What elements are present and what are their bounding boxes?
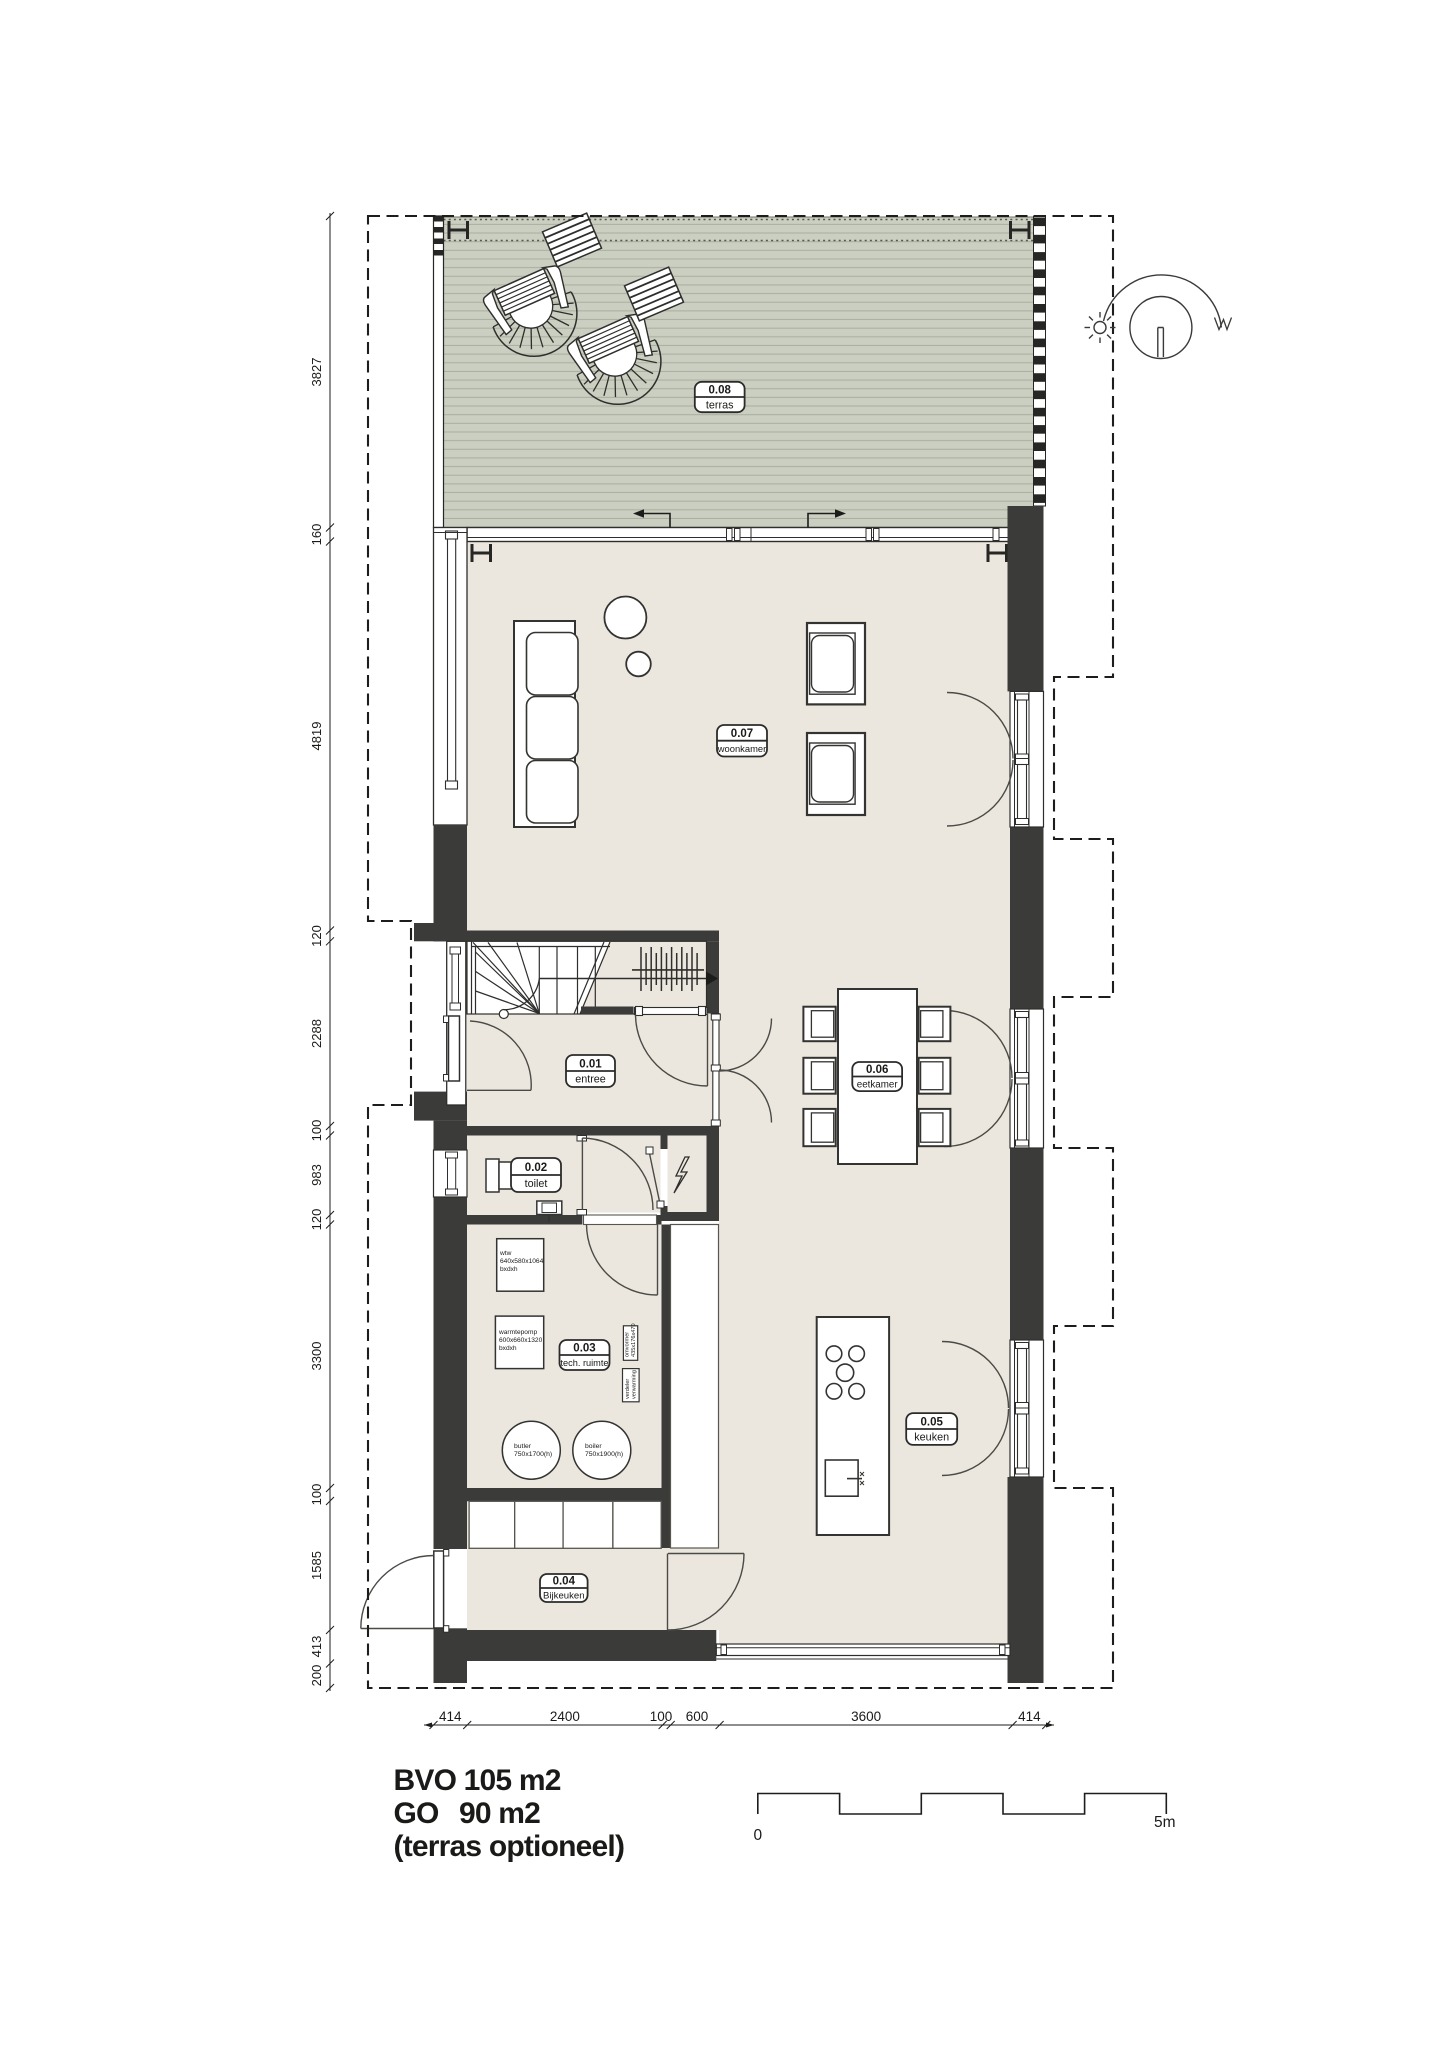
svg-text:0.02: 0.02 — [525, 1162, 547, 1174]
svg-text:butler: butler — [514, 1443, 532, 1450]
svg-text:750x1700(h): 750x1700(h) — [514, 1451, 552, 1458]
svg-text:160: 160 — [309, 524, 324, 546]
svg-text:0: 0 — [753, 1827, 762, 1844]
svg-text:100: 100 — [650, 1709, 673, 1724]
svg-text:200: 200 — [309, 1665, 324, 1687]
svg-text:(terras optioneel): (terras optioneel) — [394, 1830, 625, 1863]
svg-text:boiler: boiler — [585, 1443, 602, 1450]
svg-text:600x660x1320: 600x660x1320 — [499, 1337, 543, 1344]
svg-text:413: 413 — [309, 1636, 324, 1658]
svg-text:eetkamer: eetkamer — [857, 1079, 899, 1090]
svg-text:100: 100 — [309, 1484, 324, 1506]
svg-text:bxdxh: bxdxh — [499, 1345, 517, 1352]
svg-text:bxdxh: bxdxh — [500, 1266, 518, 1273]
svg-text:600: 600 — [686, 1709, 709, 1724]
svg-text:5m: 5m — [1154, 1814, 1176, 1831]
svg-text:435x176x470: 435x176x470 — [631, 1323, 637, 1357]
svg-text:120: 120 — [309, 1209, 324, 1231]
svg-text:414: 414 — [1018, 1709, 1041, 1724]
svg-text:BVO 105 m2: BVO 105 m2 — [394, 1764, 561, 1797]
svg-text:2400: 2400 — [550, 1709, 580, 1724]
svg-text:Bijkeuken: Bijkeuken — [543, 1591, 585, 1602]
svg-text:0.05: 0.05 — [921, 1416, 944, 1428]
svg-text:100: 100 — [309, 1120, 324, 1142]
svg-text:0.06: 0.06 — [866, 1064, 888, 1076]
svg-text:0.07: 0.07 — [731, 728, 753, 740]
svg-text:640x580x1064: 640x580x1064 — [500, 1258, 544, 1265]
svg-text:3827: 3827 — [309, 358, 324, 387]
svg-text:983: 983 — [309, 1164, 324, 1186]
svg-text:0.08: 0.08 — [709, 385, 732, 397]
svg-text:keuken: keuken — [914, 1431, 949, 1443]
svg-text:verdeler: verdeler — [625, 1379, 631, 1399]
svg-text:warmtepomp: warmtepomp — [498, 1329, 537, 1336]
svg-text:2288: 2288 — [309, 1019, 324, 1048]
svg-text:0.04: 0.04 — [553, 1576, 576, 1588]
svg-text:verwarming: verwarming — [632, 1370, 638, 1399]
svg-text:1585: 1585 — [309, 1551, 324, 1580]
svg-text:wtw: wtw — [499, 1250, 512, 1257]
svg-text:4819: 4819 — [309, 722, 324, 751]
svg-text:750x1900(h): 750x1900(h) — [585, 1451, 623, 1458]
svg-text:terras: terras — [706, 400, 734, 412]
svg-text:entree: entree — [575, 1073, 606, 1085]
svg-text:tech. ruimte: tech. ruimte — [561, 1358, 609, 1368]
svg-text:120: 120 — [309, 925, 324, 947]
svg-text:0.03: 0.03 — [573, 1343, 595, 1355]
svg-text:omvormer: omvormer — [625, 1332, 631, 1357]
svg-text:3300: 3300 — [309, 1342, 324, 1371]
svg-text:woonkamer: woonkamer — [717, 743, 766, 754]
svg-text:toilet: toilet — [525, 1178, 548, 1190]
svg-text:3600: 3600 — [851, 1709, 881, 1724]
svg-text:GO90 m2: GO90 m2 — [394, 1797, 541, 1830]
svg-text:0.01: 0.01 — [579, 1058, 602, 1070]
svg-text:414: 414 — [439, 1709, 462, 1724]
